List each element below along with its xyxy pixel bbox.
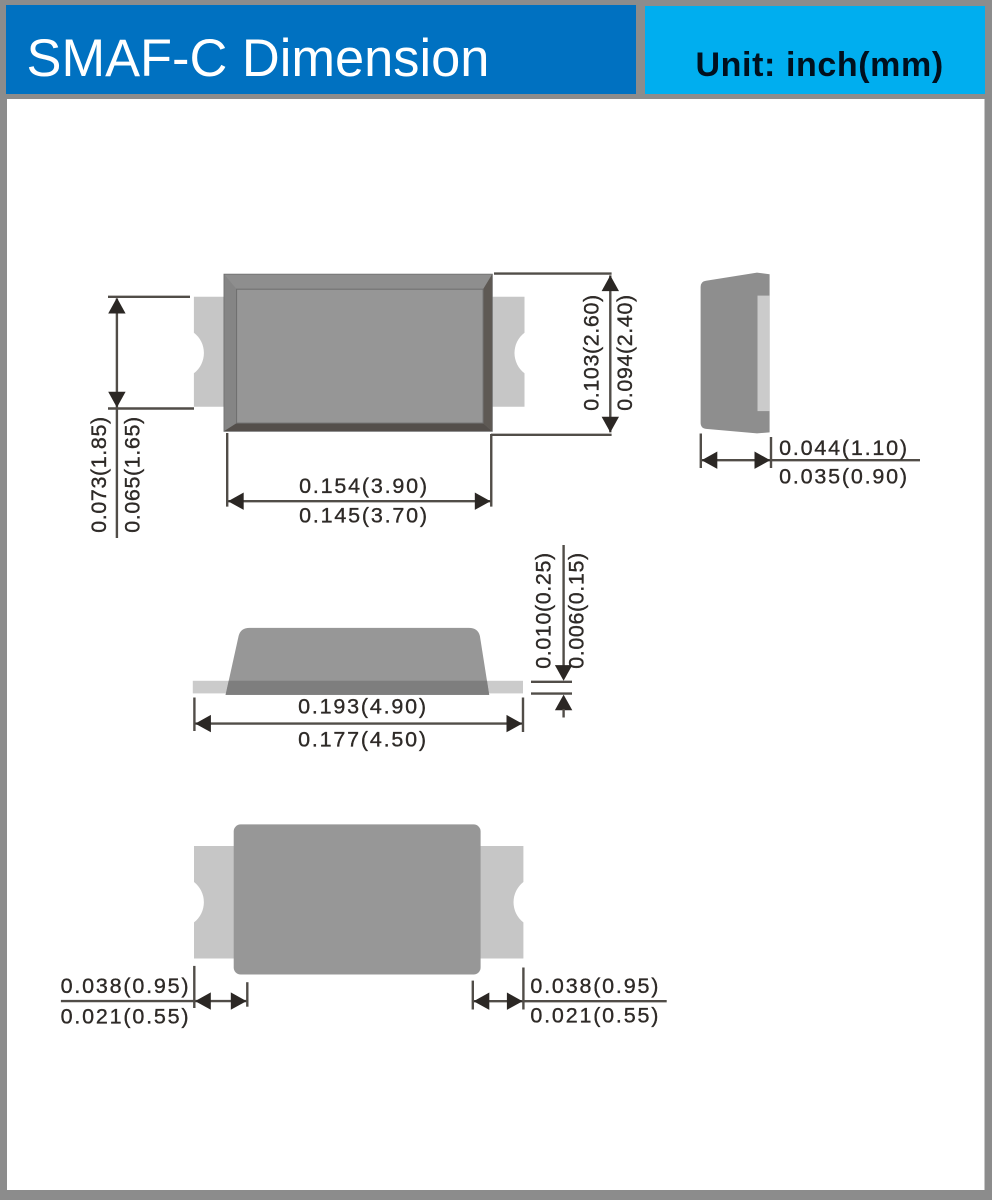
svg-text:0.038(0.95): 0.038(0.95)	[530, 974, 660, 998]
svg-text:0.044(1.10): 0.044(1.10)	[779, 436, 909, 460]
svg-text:0.021(0.55): 0.021(0.55)	[61, 1005, 191, 1029]
svg-text:0.021(0.55): 0.021(0.55)	[530, 1004, 660, 1028]
svg-text:0.154(3.90): 0.154(3.90)	[299, 474, 429, 498]
svg-text:0.193(4.90): 0.193(4.90)	[298, 695, 428, 719]
svg-text:0.145(3.70): 0.145(3.70)	[299, 504, 429, 528]
svg-text:0.035(0.90): 0.035(0.90)	[779, 465, 909, 489]
svg-text:0.038(0.95): 0.038(0.95)	[61, 974, 191, 998]
svg-text:Unit: inch(mm): Unit: inch(mm)	[696, 46, 944, 84]
svg-text:0.177(4.50): 0.177(4.50)	[298, 727, 428, 751]
svg-text:0.073(1.85): 0.073(1.85)	[87, 416, 111, 533]
svg-text:0.094(2.40): 0.094(2.40)	[613, 294, 637, 411]
svg-text:0.006(0.15): 0.006(0.15)	[565, 552, 589, 669]
svg-text:SMAF-C Dimension: SMAF-C Dimension	[27, 30, 490, 88]
svg-text:0.065(1.65): 0.065(1.65)	[121, 416, 145, 533]
svg-text:0.103(2.60): 0.103(2.60)	[579, 294, 603, 411]
svg-text:0.010(0.25): 0.010(0.25)	[532, 552, 556, 669]
